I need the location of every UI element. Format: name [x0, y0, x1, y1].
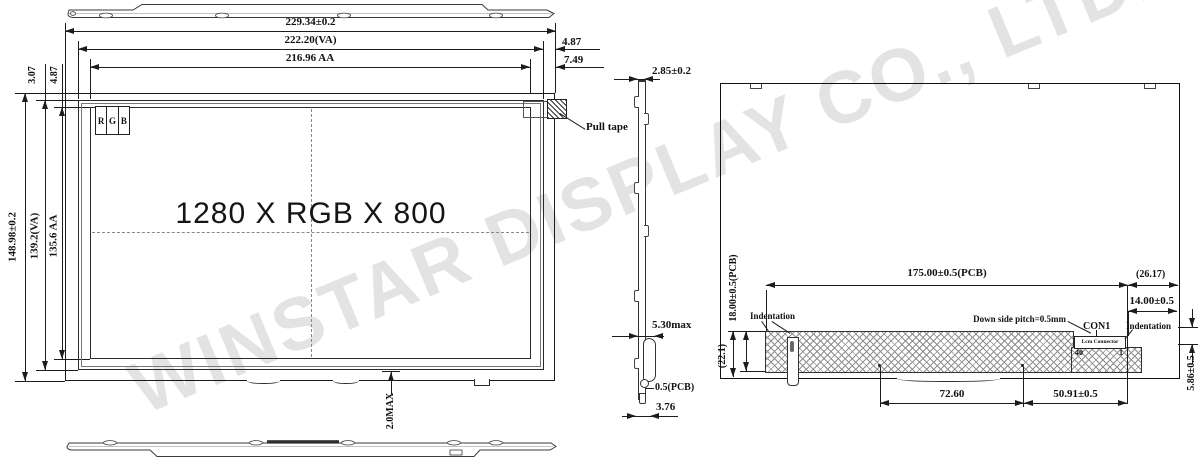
dim-text: 148.98±0.2: [8, 212, 19, 262]
dim-pcb-width-label: 175.00±0.5(PCB): [766, 268, 1128, 279]
top-notch: [750, 84, 762, 89]
dim-connector-height-label: 5.86±0.5: [1185, 350, 1199, 396]
fpc-dark-segment: [267, 440, 339, 443]
clip: [644, 113, 649, 125]
arrow: [22, 93, 28, 102]
rgb-cell-b: B: [119, 107, 129, 134]
pcb-peg-mark: [790, 341, 794, 352]
arrow: [1118, 400, 1127, 406]
bottom-edge-bow: [897, 375, 1000, 382]
clip: [634, 358, 639, 369]
bottom-edge-dip: [333, 377, 359, 384]
extension-line: [65, 23, 66, 93]
dim-text: 3.07: [28, 66, 38, 84]
bottom-profile-view: [63, 438, 559, 462]
dim-thickness-label: 2.85±0.2: [652, 66, 691, 77]
arrow: [1128, 308, 1137, 314]
extension-line: [15, 93, 65, 94]
arrow: [78, 46, 87, 52]
clip: [342, 441, 355, 445]
dim-outline-height-label: 148.98±0.2: [6, 197, 20, 277]
side-profile-pcb-bulge: [643, 338, 656, 382]
dim-right-ref-label: (26.17): [1136, 270, 1165, 280]
clip: [448, 441, 461, 445]
dim-connector-span-label: 50.91±0.5: [1024, 389, 1127, 400]
dim-line: [45, 64, 46, 370]
dim-line: [766, 285, 1128, 286]
side-profile-hole: [640, 379, 649, 388]
pull-tape-label: Pull tape: [586, 122, 628, 133]
arrow: [42, 100, 48, 109]
arrow: [65, 28, 74, 34]
arrow: [629, 76, 638, 82]
extension-line: [1178, 344, 1198, 345]
dim-hole-span-label: 72.60: [880, 389, 1024, 400]
arrow: [556, 64, 565, 70]
rgb-cell-g: G: [107, 107, 118, 134]
arrow: [388, 372, 394, 381]
side-profile-tail: [639, 393, 646, 404]
hole: [71, 12, 76, 16]
dim-line: [78, 49, 543, 50]
dim-line: [880, 403, 1025, 404]
dim-text: 5.86±0.5: [1187, 355, 1197, 391]
arrow: [1168, 308, 1177, 314]
dim-pcb-height-label: 18.00±0.5(PCB): [727, 246, 741, 330]
extension-line: [15, 381, 65, 382]
rgb-cell-r: R: [96, 107, 107, 134]
arrow: [650, 413, 659, 419]
dim-aa-width-label: 216.96 AA: [90, 53, 530, 64]
arrow: [730, 331, 736, 340]
bottom-profile-outline: [67, 443, 556, 457]
pin-1-label: 1: [1119, 349, 1123, 357]
arrow: [629, 333, 638, 339]
arrow: [22, 372, 28, 381]
dim-left-ref-label: (22.1): [717, 334, 729, 378]
arrow: [880, 400, 889, 406]
top-notch: [1144, 84, 1156, 89]
arrow: [42, 361, 48, 370]
arrow: [521, 64, 530, 70]
extension-line: [740, 371, 765, 372]
dim-line: [65, 31, 556, 32]
extension-line: [1178, 327, 1198, 328]
dim-aa-height-label: 135.6 AA: [47, 198, 60, 274]
dim-va-height-label: 139.2(VA): [28, 196, 41, 276]
leader-line: [1096, 330, 1097, 336]
dim-left-margin-aa-label: 4.87: [49, 60, 61, 90]
dim-bottom-width-label: 3.76: [656, 402, 675, 413]
dim-connector-offset-label: 14.00±0.5: [1102, 296, 1174, 307]
dim-line: [1024, 403, 1128, 404]
dim-text: 135.6 AA: [48, 215, 59, 258]
extension-line: [1128, 311, 1129, 336]
arrow: [1169, 282, 1178, 288]
clip: [644, 225, 649, 237]
extension-line: [880, 367, 881, 407]
pcb-hatch-main: [765, 331, 1074, 373]
dim-text: 2.0MAX: [386, 393, 396, 429]
arrow: [534, 46, 543, 52]
clip: [634, 96, 639, 108]
top-notch: [1028, 84, 1040, 89]
bottom-edge-dip: [247, 377, 280, 384]
clip: [490, 441, 503, 445]
dim-outline-width-label: 229.34±0.2: [65, 17, 556, 28]
extension-line: [78, 41, 79, 99]
arrow: [730, 368, 736, 377]
arrow: [766, 282, 775, 288]
clip: [250, 441, 263, 445]
extension-line: [543, 41, 544, 99]
pin-40-label: 40: [1075, 349, 1083, 357]
resolution-text: 1280 X RGB X 800: [150, 197, 472, 231]
dim-va-width-label: 222.20(VA): [78, 35, 543, 46]
arrow: [743, 331, 749, 340]
clip: [634, 182, 639, 194]
dim-text: 139.2(VA): [29, 213, 40, 260]
corner-detail: [523, 101, 549, 118]
leader-line: [646, 388, 654, 389]
arrow: [1024, 400, 1033, 406]
dim-line: [25, 93, 26, 381]
bottom-edge-notch: [474, 379, 490, 386]
dim-bottom-protrusion-label: 2.0MAX: [383, 396, 398, 426]
dim-pcb-thickness-label: 0.5(PCB): [655, 383, 694, 393]
arrow: [743, 362, 749, 371]
dim-right-aa-margin-label: 7.49: [564, 55, 583, 66]
rgb-pixel-detail: R G B: [95, 106, 130, 135]
dim-max-thickness-label: 5.30max: [652, 320, 691, 331]
dim-line: [90, 67, 530, 68]
leader-line: [559, 113, 585, 130]
mechanical-drawing-sheet: WINSTAR DISPLAY CO., LTD. 229.34±0.2 222…: [0, 0, 1200, 470]
dim-text: 18.00±0.5(PCB): [729, 254, 739, 321]
extension-line: [555, 23, 556, 93]
dim-text: 4.87: [50, 66, 60, 84]
extension-line: [530, 59, 531, 93]
down-side-pitch-label: Down side pitch=0.5mm: [960, 315, 1066, 324]
dim-text: (22.1): [718, 344, 728, 368]
indentation-left-label: Indentation: [750, 312, 795, 321]
arrow: [1128, 282, 1137, 288]
arrow: [90, 64, 99, 70]
arrow: [556, 46, 565, 52]
arrow: [627, 413, 636, 419]
tab: [450, 450, 462, 455]
clip: [634, 290, 639, 302]
centerline-vertical: [311, 109, 312, 357]
extension-line: [766, 290, 767, 331]
dim-left-margin-va-label: 3.07: [27, 60, 39, 90]
clip: [104, 441, 117, 445]
arrow: [1189, 318, 1195, 327]
arrow: [654, 333, 663, 339]
